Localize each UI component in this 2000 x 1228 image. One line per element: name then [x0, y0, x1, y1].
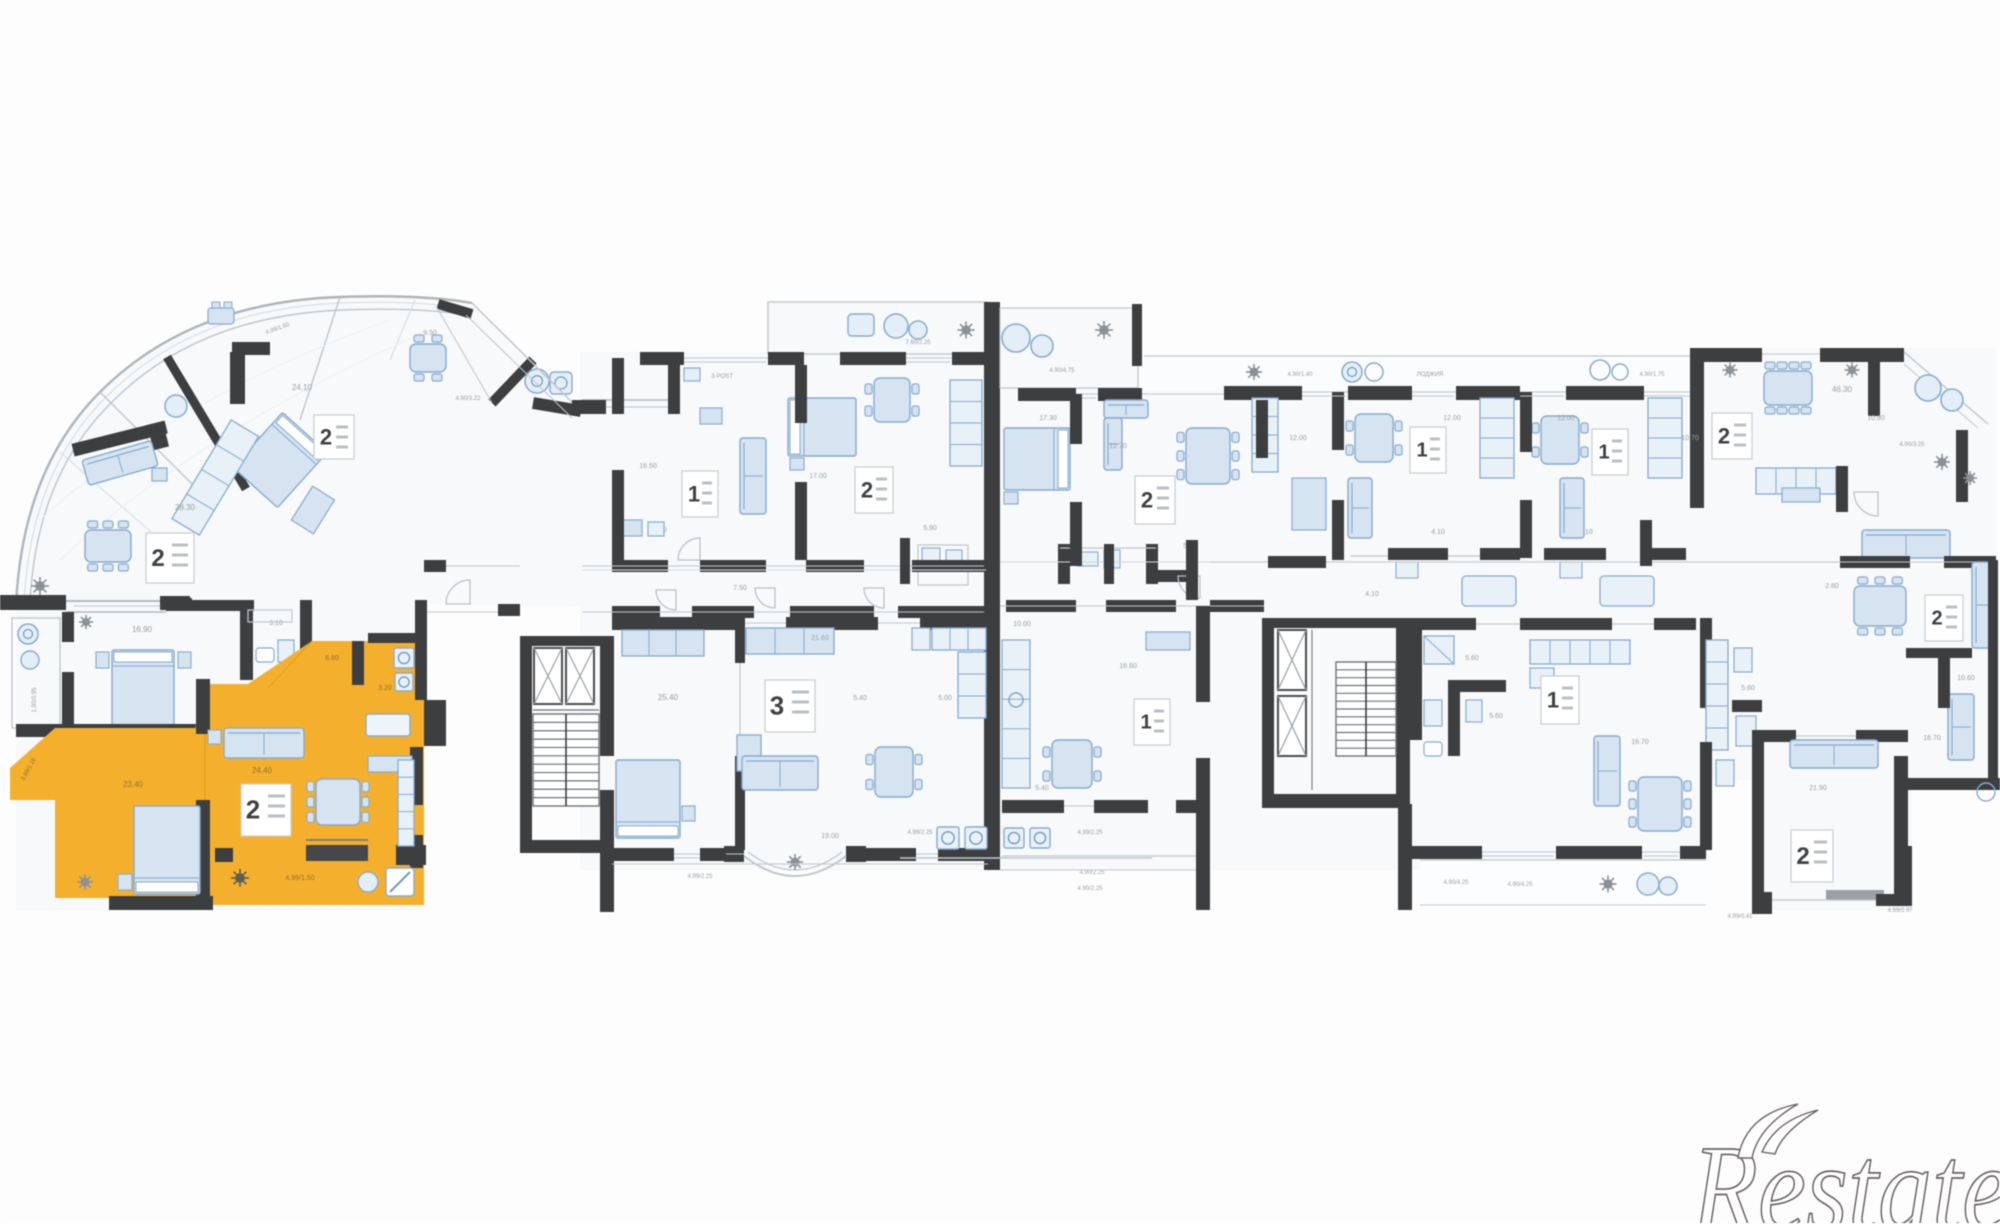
svg-text:7.50: 7.50 [733, 585, 747, 592]
svg-text:16.50: 16.50 [639, 463, 657, 470]
svg-text:4.90/1.75: 4.90/1.75 [1639, 372, 1665, 378]
svg-text:5.60: 5.60 [1741, 685, 1755, 692]
svg-text:12.00: 12.00 [1289, 435, 1307, 442]
svg-text:2: 2 [1796, 843, 1809, 870]
svg-text:4.90/2.25: 4.90/2.25 [1077, 886, 1103, 892]
svg-text:17.30: 17.30 [1039, 415, 1057, 422]
svg-text:4.90/2.25: 4.90/2.25 [1079, 870, 1105, 876]
svg-text:16.90: 16.90 [132, 625, 153, 634]
svg-text:1.90/0.95: 1.90/0.95 [32, 687, 38, 713]
svg-text:21.60: 21.60 [811, 635, 829, 642]
svg-text:1: 1 [1547, 687, 1559, 712]
svg-text:2: 2 [151, 545, 164, 572]
svg-text:2: 2 [1141, 487, 1153, 512]
svg-text:4.99/1.50: 4.99/1.50 [285, 875, 314, 882]
svg-text:4.90/4.75: 4.90/4.75 [1049, 368, 1075, 374]
svg-text:23.40: 23.40 [123, 780, 144, 789]
svg-text:4.10: 4.10 [1365, 591, 1379, 598]
svg-text:3.10: 3.10 [269, 620, 283, 627]
svg-text:3: 3 [770, 691, 784, 721]
svg-text:19.00: 19.00 [821, 833, 839, 840]
svg-text:12.70: 12.70 [1109, 443, 1127, 450]
svg-text:Restate: Restate [1691, 1120, 2000, 1223]
svg-text:1: 1 [688, 481, 700, 506]
svg-text:10.00: 10.00 [1013, 621, 1031, 628]
svg-text:16.70: 16.70 [1631, 739, 1649, 746]
svg-text:9.30: 9.30 [423, 330, 437, 337]
svg-text:2.80: 2.80 [1825, 583, 1839, 590]
svg-text:5.00: 5.00 [938, 695, 952, 702]
svg-text:8.80: 8.80 [325, 655, 339, 662]
svg-text:3-POST: 3-POST [711, 374, 733, 380]
svg-text:3.20: 3.20 [378, 685, 392, 692]
svg-text:28.30: 28.30 [175, 503, 196, 512]
svg-text:4.99/2.25: 4.99/2.25 [687, 874, 713, 880]
svg-text:2: 2 [1931, 608, 1942, 630]
svg-text:24.40: 24.40 [252, 766, 273, 775]
svg-text:4.90/3.25: 4.90/3.25 [1899, 442, 1925, 448]
svg-text:25.40: 25.40 [658, 693, 679, 702]
svg-text:5.40: 5.40 [1035, 785, 1049, 792]
svg-text:21.90: 21.90 [1809, 785, 1827, 792]
svg-text:4.90/4.25: 4.90/4.25 [1443, 880, 1469, 886]
svg-text:4.10: 4.10 [1431, 529, 1445, 536]
svg-text:2: 2 [246, 795, 260, 825]
svg-text:4.99/2.25: 4.99/2.25 [907, 830, 933, 836]
svg-text:1: 1 [1598, 442, 1609, 464]
svg-text:16.60: 16.60 [1119, 663, 1137, 670]
svg-text:12.00: 12.00 [1443, 415, 1461, 422]
svg-text:2: 2 [861, 477, 873, 502]
svg-text:4.90/3.22: 4.90/3.22 [455, 396, 481, 402]
svg-text:4.99/0.41: 4.99/0.41 [1727, 914, 1753, 920]
svg-text:1: 1 [1416, 440, 1427, 462]
svg-text:17.00: 17.00 [809, 473, 827, 480]
svg-text:4.99/2.25: 4.99/2.25 [1077, 830, 1103, 836]
svg-text:10.70: 10.70 [1681, 435, 1699, 442]
svg-text:5.60: 5.60 [1489, 713, 1503, 720]
svg-text:5.60: 5.60 [1465, 655, 1479, 662]
svg-text:16.70: 16.70 [1923, 735, 1941, 742]
svg-text:1: 1 [1140, 712, 1151, 734]
svg-text:10.80: 10.80 [1867, 415, 1885, 422]
svg-text:5.90: 5.90 [923, 525, 937, 532]
svg-text:12.00: 12.00 [1557, 415, 1575, 422]
svg-text:ЛОДЖИЯ: ЛОДЖИЯ [1417, 372, 1444, 378]
svg-text:4.90/4.25: 4.90/4.25 [1507, 882, 1533, 888]
svg-text:7.60/2.25: 7.60/2.25 [905, 340, 931, 346]
svg-text:2: 2 [1718, 423, 1730, 448]
svg-text:46.30: 46.30 [1832, 385, 1853, 394]
svg-text:4.90/1.40: 4.90/1.40 [1287, 372, 1313, 378]
svg-text:2: 2 [320, 424, 332, 449]
svg-text:5.40: 5.40 [853, 695, 867, 702]
svg-text:4.99/0.97: 4.99/0.97 [1887, 908, 1913, 914]
svg-text:24.10: 24.10 [292, 383, 313, 392]
svg-text:10.60: 10.60 [1957, 675, 1975, 682]
